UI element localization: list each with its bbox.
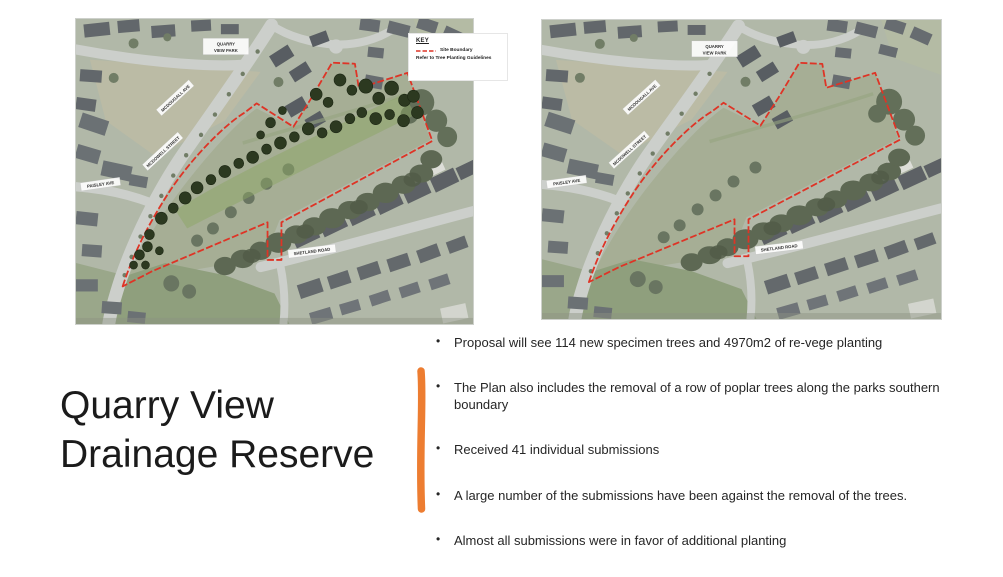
bullet-item: • Almost all submissions were in favor o… <box>433 532 975 549</box>
map-key: KEY Site Boundary Refer to Tree Planting… <box>408 33 508 81</box>
bullet-glyph: • <box>436 334 440 350</box>
map-key-item-label: Refer to Tree Planting Guidelines <box>416 56 491 61</box>
existing-site-aerial-map: QUARRY VIEW PARK MCDOUGALL AVE MCDOWELL … <box>541 19 942 320</box>
site-boundary-swatch <box>416 49 436 53</box>
park-label-line1: QUARRY <box>217 41 235 46</box>
bullet-text: The Plan also includes the removal of a … <box>454 380 940 412</box>
bullet-item: • The Plan also includes the removal of … <box>433 379 975 413</box>
park-name-label: QUARRY VIEW PARK <box>692 41 738 57</box>
accent-bar <box>413 366 429 514</box>
bullet-item: • A large number of the submissions have… <box>433 487 975 504</box>
map-key-item-label: Site Boundary <box>440 48 473 53</box>
map-key-title: KEY <box>416 38 502 44</box>
bullet-text: Received 41 individual submissions <box>454 442 659 457</box>
park-name-label: QUARRY VIEW PARK <box>203 38 249 54</box>
bullet-item: • Proposal will see 114 new specimen tre… <box>433 334 975 351</box>
map-key-item-boundary: Site Boundary <box>416 48 502 53</box>
park-label-line2: VIEW PARK <box>703 50 728 55</box>
bullet-text: Almost all submissions were in favor of … <box>454 533 786 548</box>
bullet-glyph: • <box>436 487 440 503</box>
map-key-item-guidelines: Refer to Tree Planting Guidelines <box>416 56 502 61</box>
bullet-glyph: • <box>436 379 440 395</box>
bullet-glyph: • <box>436 532 440 548</box>
bullet-text: A large number of the submissions have b… <box>454 488 907 503</box>
bullet-item: • Received 41 individual submissions <box>433 441 975 458</box>
park-label-line2: VIEW PARK <box>214 48 239 53</box>
page-title: Quarry View Drainage Reserve <box>60 381 412 479</box>
bullet-list: • Proposal will see 114 new specimen tre… <box>433 334 975 577</box>
bullet-glyph: • <box>436 441 440 457</box>
bullet-text: Proposal will see 114 new specimen trees… <box>454 335 882 350</box>
park-label-line1: QUARRY <box>705 44 723 49</box>
